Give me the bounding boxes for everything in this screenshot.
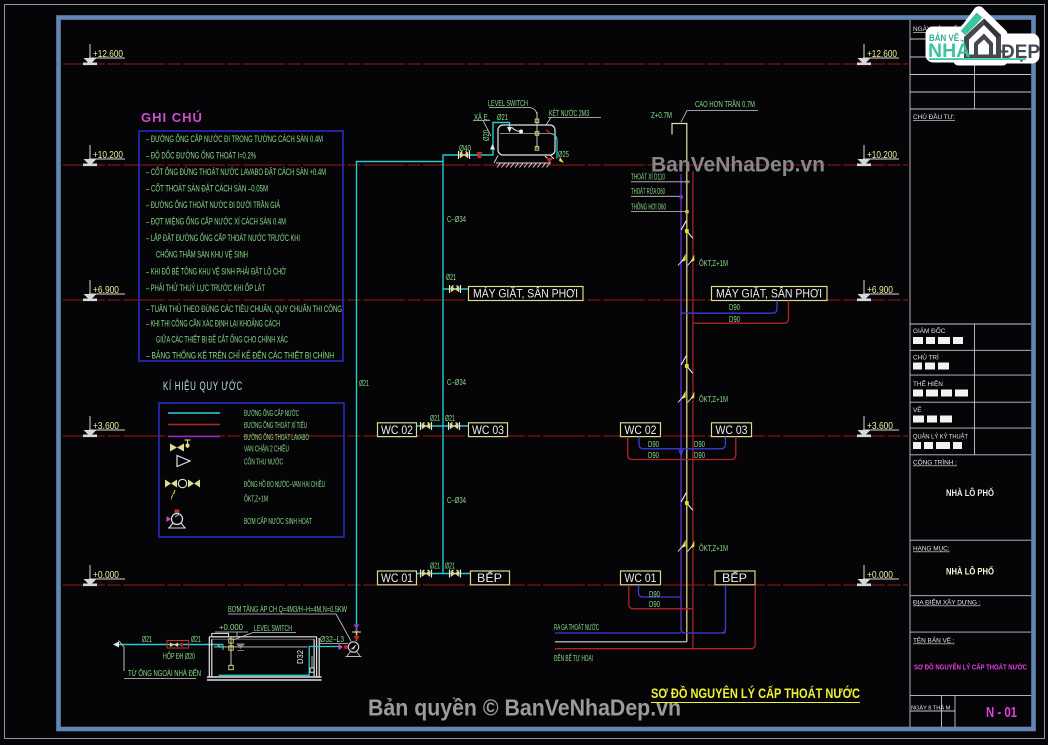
svg-text:Ø21: Ø21 bbox=[142, 634, 152, 644]
svg-text:+12.600: +12.600 bbox=[867, 48, 897, 60]
svg-text:CHỐNG THẤM SÀN KHU VỆ SINH: CHỐNG THẤM SÀN KHU VỆ SINH bbox=[156, 249, 248, 260]
svg-text:Ø21: Ø21 bbox=[497, 112, 508, 122]
svg-text:Ø21: Ø21 bbox=[445, 413, 455, 423]
svg-text:NGÀY 8 THÁ M: NGÀY 8 THÁ M bbox=[911, 705, 951, 712]
svg-text:Ø21: Ø21 bbox=[430, 561, 440, 571]
svg-text:ÔKT,Z+1M: ÔKT,Z+1M bbox=[699, 543, 728, 553]
svg-text:D90: D90 bbox=[648, 439, 659, 449]
svg-text:+3.600: +3.600 bbox=[867, 420, 893, 432]
svg-text:ÔKT,Z+1M: ÔKT,Z+1M bbox=[699, 258, 728, 268]
svg-text:BanVeNhaDep.vn: BanVeNhaDep.vn bbox=[651, 154, 825, 177]
svg-text:D90: D90 bbox=[729, 314, 740, 324]
svg-text:Bản quyền © BanVeNhaDep.vn: Bản quyền © BanVeNhaDep.vn bbox=[368, 695, 681, 721]
svg-text:D90: D90 bbox=[649, 589, 660, 599]
svg-text:– ĐƯỜNG ỐNG CẤP NƯỚC ĐI TRONG: – ĐƯỜNG ỐNG CẤP NƯỚC ĐI TRONG TƯỜNG CÁCH… bbox=[146, 133, 323, 144]
svg-text:C–Ø34: C–Ø34 bbox=[447, 214, 466, 224]
svg-text:ĐƯỜNG ỐNG THOÁT XÍ TIỂU: ĐƯỜNG ỐNG THOÁT XÍ TIỂU bbox=[244, 419, 307, 430]
svg-text:MÁY GIẶT, SÂN PHƠI: MÁY GIẶT, SÂN PHƠI bbox=[716, 288, 822, 301]
svg-text:Ø25: Ø25 bbox=[558, 149, 569, 159]
svg-text:MÁY GIẶT, SÂN PHƠI: MÁY GIẶT, SÂN PHƠI bbox=[473, 288, 578, 301]
svg-text:GIỮA CÁC THIẾT BỊ ĐỂ CẮT ỐNG C: GIỮA CÁC THIẾT BỊ ĐỂ CẮT ỐNG CHO CHÍNH X… bbox=[156, 334, 288, 345]
svg-text:N - 01: N - 01 bbox=[986, 704, 1017, 721]
svg-text:– CỐT THOÁT SÀN ĐẶT CÁCH SÀN –: – CỐT THOÁT SÀN ĐẶT CÁCH SÀN –0.05M bbox=[146, 183, 268, 194]
svg-text:BƠM TĂNG ÁP CH Q=4M3/H–H=4M,N: BƠM TĂNG ÁP CH Q=4M3/H–H=4M,N=0.5KW bbox=[228, 604, 348, 614]
svg-text:ĐƯỜNG ỐNG THOÁT LAVABO: ĐƯỜNG ỐNG THOÁT LAVABO bbox=[244, 431, 309, 442]
svg-text:Ø21: Ø21 bbox=[430, 413, 440, 423]
svg-text:+3.600: +3.600 bbox=[93, 420, 119, 432]
svg-text:ĐẾN BỂ TỰ HOẠI: ĐẾN BỂ TỰ HOẠI bbox=[554, 652, 593, 663]
svg-text:Ø21: Ø21 bbox=[359, 378, 369, 388]
svg-text:BẾP: BẾP bbox=[722, 572, 747, 585]
svg-text:+0.000: +0.000 bbox=[93, 569, 119, 581]
svg-text:CÔN THU NƯỚC: CÔN THU NƯỚC bbox=[244, 457, 283, 467]
svg-text:Ø21: Ø21 bbox=[446, 272, 456, 282]
svg-text:ĐƯỜNG ỐNG CẤP NƯỚC: ĐƯỜNG ỐNG CẤP NƯỚC bbox=[244, 407, 299, 418]
svg-text:Ø20: Ø20 bbox=[481, 130, 491, 141]
svg-text:– TUÂN THỦ THEO ĐÚNG CÁC TIÊU: – TUÂN THỦ THEO ĐÚNG CÁC TIÊU CHUẨN, QUY… bbox=[146, 303, 342, 314]
svg-text:HỘP ĐH Ø20: HỘP ĐH Ø20 bbox=[163, 651, 195, 661]
svg-text:C–Ø34: C–Ø34 bbox=[447, 377, 466, 387]
svg-text:D90: D90 bbox=[694, 450, 705, 460]
svg-text:– ĐỢT MIỆNG ỐNG CẤP NƯỚC XÍ CÁ: – ĐỢT MIỆNG ỐNG CẤP NƯỚC XÍ CÁCH SÀN 0.4… bbox=[146, 216, 286, 227]
svg-text:THỂ HIỆN: THỂ HIỆN bbox=[913, 379, 943, 388]
svg-text:VAN CHẶN 2 CHIỀU: VAN CHẶN 2 CHIỀU bbox=[244, 444, 289, 454]
svg-text:LEVEL SWITCH: LEVEL SWITCH bbox=[488, 98, 528, 108]
svg-text:WC 01: WC 01 bbox=[381, 573, 413, 585]
svg-text:+10.200: +10.200 bbox=[867, 149, 897, 161]
svg-text:D90: D90 bbox=[648, 450, 659, 460]
svg-text:+0.000: +0.000 bbox=[219, 622, 243, 632]
svg-text:Ø32–L3: Ø32–L3 bbox=[320, 634, 344, 644]
svg-text:C–Ø34: C–Ø34 bbox=[447, 495, 466, 505]
svg-text:– BẢNG THỐNG KÊ TRÊN CHỈ KỂ ĐẾ: – BẢNG THỐNG KÊ TRÊN CHỈ KỂ ĐẾN CÁC THIẾ… bbox=[146, 350, 334, 361]
svg-text:ÔKT,Z+1M: ÔKT,Z+1M bbox=[244, 494, 268, 504]
svg-text:– ĐỘ DỐC ĐƯỜNG ỐNG THOÁT I=0.2: – ĐỘ DỐC ĐƯỜNG ỐNG THOÁT I=0.2% bbox=[146, 150, 256, 161]
svg-text:Ø21: Ø21 bbox=[191, 634, 201, 644]
svg-text:NHÀ LÔ PHỐ: NHÀ LÔ PHỐ bbox=[946, 487, 994, 499]
svg-text:– PHẢI THỬ THUỶ LỰC TRƯỚC KHI: – PHẢI THỬ THUỶ LỰC TRƯỚC KHI ỐP LÁT bbox=[146, 282, 265, 293]
svg-text:RA GA THOÁT NƯỚC: RA GA THOÁT NƯỚC bbox=[554, 622, 599, 632]
svg-text:WC 03: WC 03 bbox=[716, 425, 748, 437]
svg-text:THOÁT RỬA D60: THOÁT RỬA D60 bbox=[631, 185, 665, 196]
svg-text:THÔNG HƠI D60: THÔNG HƠI D60 bbox=[631, 202, 666, 212]
svg-text:GHI CHÚ: GHI CHÚ bbox=[141, 110, 203, 125]
svg-text:WC 02: WC 02 bbox=[381, 425, 413, 437]
svg-text:CÔNG TRÌNH :: CÔNG TRÌNH : bbox=[913, 458, 957, 467]
svg-text:TÊN BẢN VẼ :: TÊN BẢN VẼ : bbox=[913, 636, 955, 645]
svg-text:– LẮP ĐẶT ĐƯỜNG ỐNG CẤP THOÁT: – LẮP ĐẶT ĐƯỜNG ỐNG CẤP THOÁT NƯỚC TRƯỚC… bbox=[146, 232, 300, 243]
svg-text:BƠM CẤP NƯỚC SINH HOẠT: BƠM CẤP NƯỚC SINH HOẠT bbox=[244, 516, 312, 526]
svg-text:– KHI THI CÔNG CẦN XÁC ĐỊNH LẠ: – KHI THI CÔNG CẦN XÁC ĐỊNH LẠI KHOẢNG C… bbox=[146, 318, 280, 329]
svg-text:QUẢN LÝ KỶ THUẬT: QUẢN LÝ KỶ THUẬT bbox=[913, 432, 968, 441]
svg-text:– ĐƯỜNG ỐNG THOÁT NƯỚC ĐI DƯỚI: – ĐƯỜNG ỐNG THOÁT NƯỚC ĐI DƯỚI TRẦN GIẢ bbox=[146, 199, 280, 210]
svg-text:Ø40: Ø40 bbox=[459, 143, 471, 153]
svg-text:D32: D32 bbox=[295, 650, 305, 664]
svg-text:D90: D90 bbox=[694, 439, 705, 449]
svg-text:ĐỒNG HỒ ĐO NƯỚC–VAN HAI CHIỀU: ĐỒNG HỒ ĐO NƯỚC–VAN HAI CHIỀU bbox=[244, 478, 325, 489]
svg-text:WC 03: WC 03 bbox=[472, 425, 504, 437]
svg-text:KÉT NƯỚC 2M3: KÉT NƯỚC 2M3 bbox=[549, 108, 589, 118]
svg-text:VẼ: VẼ bbox=[913, 405, 922, 414]
svg-text:D90: D90 bbox=[649, 599, 660, 609]
svg-text:BẾP: BẾP bbox=[477, 572, 502, 585]
svg-text:+6.900: +6.900 bbox=[93, 284, 119, 296]
svg-text:CHỦ TRÌ: CHỦ TRÌ bbox=[913, 353, 939, 362]
svg-text:– KHI ĐỔ BÊ TÔNG KHU VỆ SINH P: – KHI ĐỔ BÊ TÔNG KHU VỆ SINH PHẢI ĐẶT LỘ… bbox=[146, 266, 286, 277]
svg-text:ĐỊA ĐIỂM XÂY DỰNG :: ĐỊA ĐIỂM XÂY DỰNG : bbox=[913, 598, 981, 607]
svg-text:Ø21: Ø21 bbox=[445, 561, 455, 571]
svg-text:LEVEL SWITCH: LEVEL SWITCH bbox=[254, 623, 292, 633]
svg-text:TỪ ỐNG NGOÀI NHÀ ĐẾN: TỪ ỐNG NGOÀI NHÀ ĐẾN bbox=[128, 667, 201, 678]
svg-text:SƠ ĐỒ NGUYÊN LÝ CẤP THOÁT NƯỚC: SƠ ĐỒ NGUYÊN LÝ CẤP THOÁT NƯỚC bbox=[914, 662, 1027, 672]
svg-text:SƠ ĐỒ NGUYÊN LÝ CẤP THOÁT NƯỚC: SƠ ĐỒ NGUYÊN LÝ CẤP THOÁT NƯỚC bbox=[651, 686, 860, 701]
svg-text:+10.200: +10.200 bbox=[93, 149, 123, 161]
svg-text:Z+0.7M: Z+0.7M bbox=[651, 110, 672, 120]
svg-text:ÔKT,Z+1M: ÔKT,Z+1M bbox=[699, 394, 728, 404]
svg-text:HẠNG MỤC:: HẠNG MỤC: bbox=[913, 546, 950, 553]
svg-text:KÍ HIỆU QUY ƯỚC: KÍ HIỆU QUY ƯỚC bbox=[163, 380, 243, 393]
svg-text:+6.900: +6.900 bbox=[867, 284, 893, 296]
svg-text:NHÀ LÔ PHỐ: NHÀ LÔ PHỐ bbox=[946, 566, 994, 578]
svg-text:CAO HƠN TRẦN 0,7M: CAO HƠN TRẦN 0,7M bbox=[695, 99, 755, 109]
svg-text:D90: D90 bbox=[729, 302, 740, 312]
svg-text:+0.000: +0.000 bbox=[867, 569, 893, 581]
svg-text:WC 01: WC 01 bbox=[625, 573, 657, 585]
svg-text:WC 02: WC 02 bbox=[625, 425, 657, 437]
svg-text:+12.600: +12.600 bbox=[93, 48, 123, 60]
svg-text:– CỐT ỐNG ĐỨNG THOÁT NƯỚC LAVA: – CỐT ỐNG ĐỨNG THOÁT NƯỚC LAVABO ĐẶT CÁC… bbox=[146, 166, 326, 177]
